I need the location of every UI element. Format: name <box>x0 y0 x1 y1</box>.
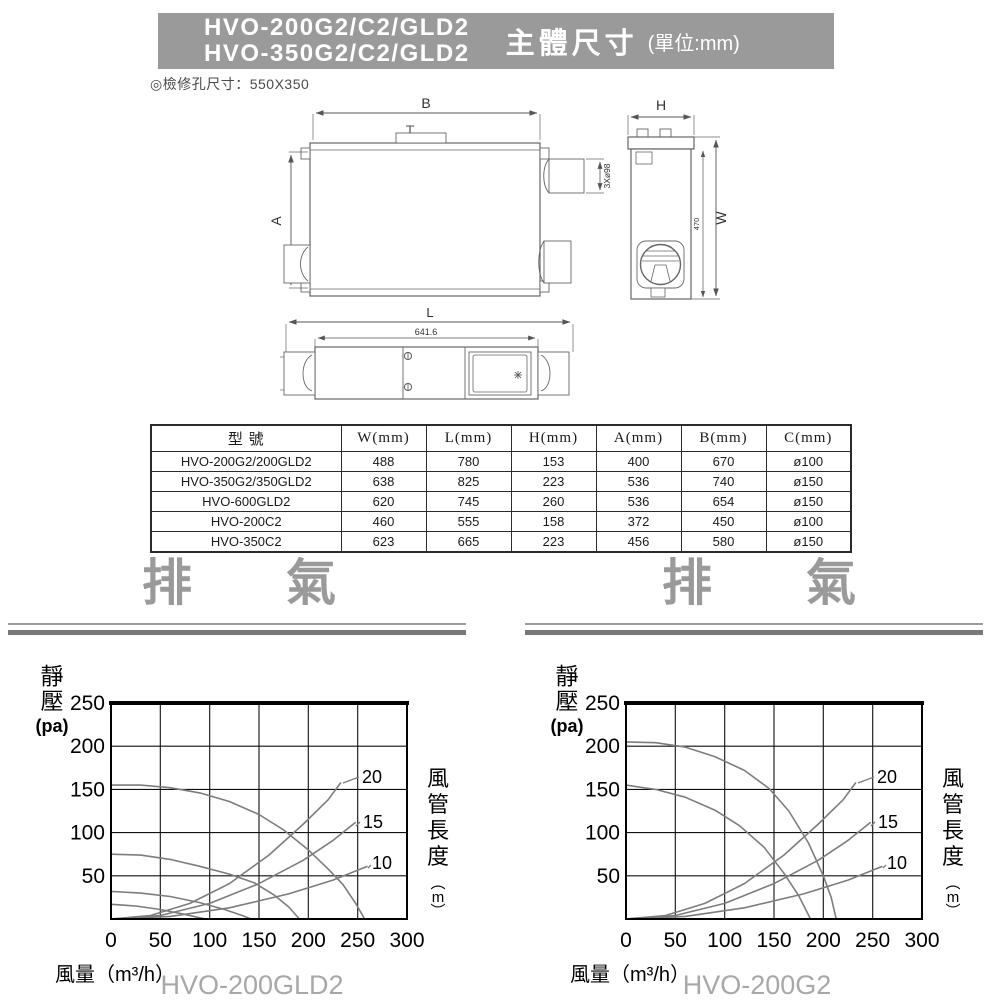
col-header-model: 型 號 <box>151 425 341 452</box>
table-row: HVO-350G2/350GLD2 638 825 223 536 740 ø1… <box>151 472 851 492</box>
chart-title: HVO-200G2 <box>683 970 832 1000</box>
cell-b: 450 <box>681 512 766 532</box>
x-tick: 200 <box>291 929 326 952</box>
cell-l: 780 <box>426 452 511 472</box>
table-row: HVO-600GLD2 620 745 260 536 654 ø150 <box>151 492 851 512</box>
chart-hvo-200g2: 250 200 150 100 50 0 50 100 150 200 250 … <box>525 650 995 1000</box>
y-axis-unit: (pa) <box>36 716 69 736</box>
cell-c: ø100 <box>766 512 851 532</box>
x-tick: 100 <box>192 929 227 952</box>
y-tick: 250 <box>585 692 620 715</box>
cell-b: 580 <box>681 532 766 553</box>
dim-label-b: B <box>421 95 430 111</box>
col-header-l: L(mm) <box>426 425 511 452</box>
duct-unit-char: ︶ <box>945 903 960 920</box>
y-tick: 150 <box>70 778 105 801</box>
x-tick: 0 <box>105 929 117 952</box>
dim-label-w: W <box>713 211 729 225</box>
duct-length-axis-label: 風 管 長 度 ︵ m ︶ <box>942 766 964 920</box>
curve-duct-10m <box>111 866 368 919</box>
col-header-c: C(mm) <box>766 425 851 452</box>
y-tick: 100 <box>70 822 105 845</box>
col-header-b: B(mm) <box>681 425 766 452</box>
model-line-1: HVO-200G2/C2/GLD2 <box>204 15 470 41</box>
duct-length-axis-label: 風 管 長 度 ︵ m ︶ <box>427 766 449 920</box>
divider-thin-left <box>8 623 466 625</box>
curve-fan-speed-3 <box>111 854 300 919</box>
y-tick: 250 <box>70 692 105 715</box>
duct-label-char: 風 <box>942 766 964 791</box>
y-axis-tick-labels: 250 200 150 100 50 <box>70 692 105 888</box>
top-view-drawing <box>284 113 604 296</box>
cell-b: 670 <box>681 452 766 472</box>
y-axis-char: 壓 <box>41 688 64 714</box>
cell-model: HVO-200G2/200GLD2 <box>151 452 341 472</box>
duct-label-char: 度 <box>942 844 964 869</box>
chart-curves <box>111 783 368 920</box>
section-heading-exhaust-left: 排 氣 <box>142 558 358 608</box>
y-axis-title: 靜 壓 (pa) <box>36 663 69 736</box>
x-tick: 250 <box>340 929 375 952</box>
y-axis-title: 靜 壓 (pa) <box>551 663 584 736</box>
dim-label-a: A <box>270 216 284 226</box>
cell-b: 654 <box>681 492 766 512</box>
curve-label-15: 15 <box>878 812 898 832</box>
cell-h: 223 <box>511 532 596 553</box>
cell-l: 745 <box>426 492 511 512</box>
curve-duct-15m <box>626 822 871 919</box>
y-axis-unit: (pa) <box>551 716 584 736</box>
curve-fan-speed-2 <box>626 742 836 919</box>
curve-duct-10m <box>626 866 883 919</box>
dim-label-w-inner: 470 <box>692 218 701 231</box>
model-names: HVO-200G2/C2/GLD2 HVO-350G2/C2/GLD2 <box>158 15 470 67</box>
cell-a: 456 <box>596 532 681 553</box>
duct-unit-char: ︶ <box>430 903 445 920</box>
header-banner: HVO-200G2/C2/GLD2 HVO-350G2/C2/GLD2 主體尺寸… <box>158 13 834 69</box>
x-tick: 300 <box>389 929 424 952</box>
dimension-drawing: B A 3Xø98 H W 470 <box>270 95 750 420</box>
x-axis-title: 風量（m³/h） <box>570 963 690 986</box>
y-axis-char: 靜 <box>556 663 579 689</box>
x-tick: 200 <box>806 929 841 952</box>
inspection-hole-note: ◎檢修孔尺寸：550X350 <box>150 74 309 94</box>
cell-a: 372 <box>596 512 681 532</box>
y-tick: 50 <box>597 865 620 888</box>
cell-w: 638 <box>341 472 426 492</box>
duct-label-char: 度 <box>427 844 449 869</box>
chart-hvo-200gld2: 250 200 150 100 50 0 50 100 150 200 250 … <box>10 650 500 1000</box>
y-axis-char: 壓 <box>556 688 579 714</box>
chart-grid <box>626 703 922 919</box>
cell-a: 400 <box>596 452 681 472</box>
cell-b: 740 <box>681 472 766 492</box>
duct-label-char: 管 <box>942 792 964 817</box>
cell-c: ø150 <box>766 472 851 492</box>
cell-w: 488 <box>341 452 426 472</box>
y-tick: 200 <box>70 735 105 758</box>
curve-fan-speed-4 <box>111 785 365 919</box>
y-axis-tick-labels: 250 200 150 100 50 <box>585 692 620 888</box>
x-tick: 150 <box>756 929 791 952</box>
x-axis-tick-labels: 0 50 100 150 200 250 300 <box>620 929 939 952</box>
duct-label-char: 長 <box>427 818 449 843</box>
x-tick: 50 <box>149 929 172 952</box>
cell-w: 620 <box>341 492 426 512</box>
curve-duct-20m <box>626 783 856 920</box>
x-tick: 0 <box>620 929 632 952</box>
x-axis-tick-labels: 0 50 100 150 200 250 300 <box>105 929 424 952</box>
curve-value-labels: 20 15 10 <box>343 767 392 873</box>
cell-h: 223 <box>511 472 596 492</box>
table-row: HVO-200G2/200GLD2 488 780 153 400 670 ø1… <box>151 452 851 472</box>
x-tick: 100 <box>707 929 742 952</box>
x-tick: 250 <box>855 929 890 952</box>
section-heading-exhaust-right: 排 氣 <box>662 558 878 608</box>
cell-l: 825 <box>426 472 511 492</box>
cell-l: 665 <box>426 532 511 553</box>
model-line-2: HVO-350G2/C2/GLD2 <box>204 41 470 67</box>
curve-value-labels: 20 15 10 <box>858 767 907 873</box>
y-tick: 100 <box>585 822 620 845</box>
curve-label-15: 15 <box>363 812 383 832</box>
divider-thick-right <box>525 630 983 635</box>
duct-dimension-note: 3Xø98 <box>602 163 612 188</box>
duct-label-char: 管 <box>427 792 449 817</box>
duct-label-char: 長 <box>942 818 964 843</box>
cell-h: 153 <box>511 452 596 472</box>
cell-model: HVO-200C2 <box>151 512 341 532</box>
side-view-drawing <box>628 115 720 299</box>
col-header-h: H(mm) <box>511 425 596 452</box>
cell-model: HVO-600GLD2 <box>151 492 341 512</box>
divider-thin-right <box>525 623 983 625</box>
curve-duct-15m <box>111 822 356 919</box>
cell-w: 623 <box>341 532 426 553</box>
dim-label-h: H <box>656 97 666 113</box>
x-tick: 300 <box>904 929 939 952</box>
col-header-a: A(mm) <box>596 425 681 452</box>
cell-c: ø150 <box>766 532 851 553</box>
cell-l: 555 <box>426 512 511 532</box>
x-axis-title: 風量（m³/h） <box>55 963 175 986</box>
dimension-table: 型 號 W(mm) L(mm) H(mm) A(mm) B(mm) C(mm) … <box>150 424 852 553</box>
page-title: 主體尺寸 <box>506 20 638 62</box>
curve-label-20: 20 <box>877 767 897 787</box>
y-axis-char: 靜 <box>41 663 64 689</box>
cell-model: HVO-350C2 <box>151 532 341 553</box>
cell-c: ø100 <box>766 452 851 472</box>
cell-a: 536 <box>596 492 681 512</box>
cell-model: HVO-350G2/350GLD2 <box>151 472 341 492</box>
curve-label-10: 10 <box>887 853 907 873</box>
y-tick: 200 <box>585 735 620 758</box>
table-row: HVO-350C2 623 665 223 456 580 ø150 <box>151 532 851 553</box>
unit-label: (單位:mm) <box>648 27 740 56</box>
cell-c: ø150 <box>766 492 851 512</box>
cell-h: 260 <box>511 492 596 512</box>
dim-label-l: L <box>426 305 433 320</box>
cell-w: 460 <box>341 512 426 532</box>
cell-a: 536 <box>596 472 681 492</box>
table-header-row: 型 號 W(mm) L(mm) H(mm) A(mm) B(mm) C(mm) <box>151 425 851 452</box>
x-tick: 50 <box>664 929 687 952</box>
duct-label-char: 風 <box>427 766 449 791</box>
datasheet-page: { "header": { "models": ["HVO-200G2/C2/G… <box>0 0 1000 1000</box>
curve-label-20: 20 <box>362 767 382 787</box>
cell-h: 158 <box>511 512 596 532</box>
divider-thick-left <box>8 630 466 635</box>
table-row: HVO-200C2 460 555 158 372 450 ø100 <box>151 512 851 532</box>
chart-curves <box>626 742 883 919</box>
col-header-w: W(mm) <box>341 425 426 452</box>
y-tick: 50 <box>82 865 105 888</box>
x-tick: 150 <box>241 929 276 952</box>
chart-title: HVO-200GLD2 <box>160 970 343 1000</box>
curve-duct-20m <box>111 783 341 920</box>
y-tick: 150 <box>585 778 620 801</box>
curve-label-10: 10 <box>372 853 392 873</box>
dim-label-l-inner: 641.6 <box>415 327 438 337</box>
